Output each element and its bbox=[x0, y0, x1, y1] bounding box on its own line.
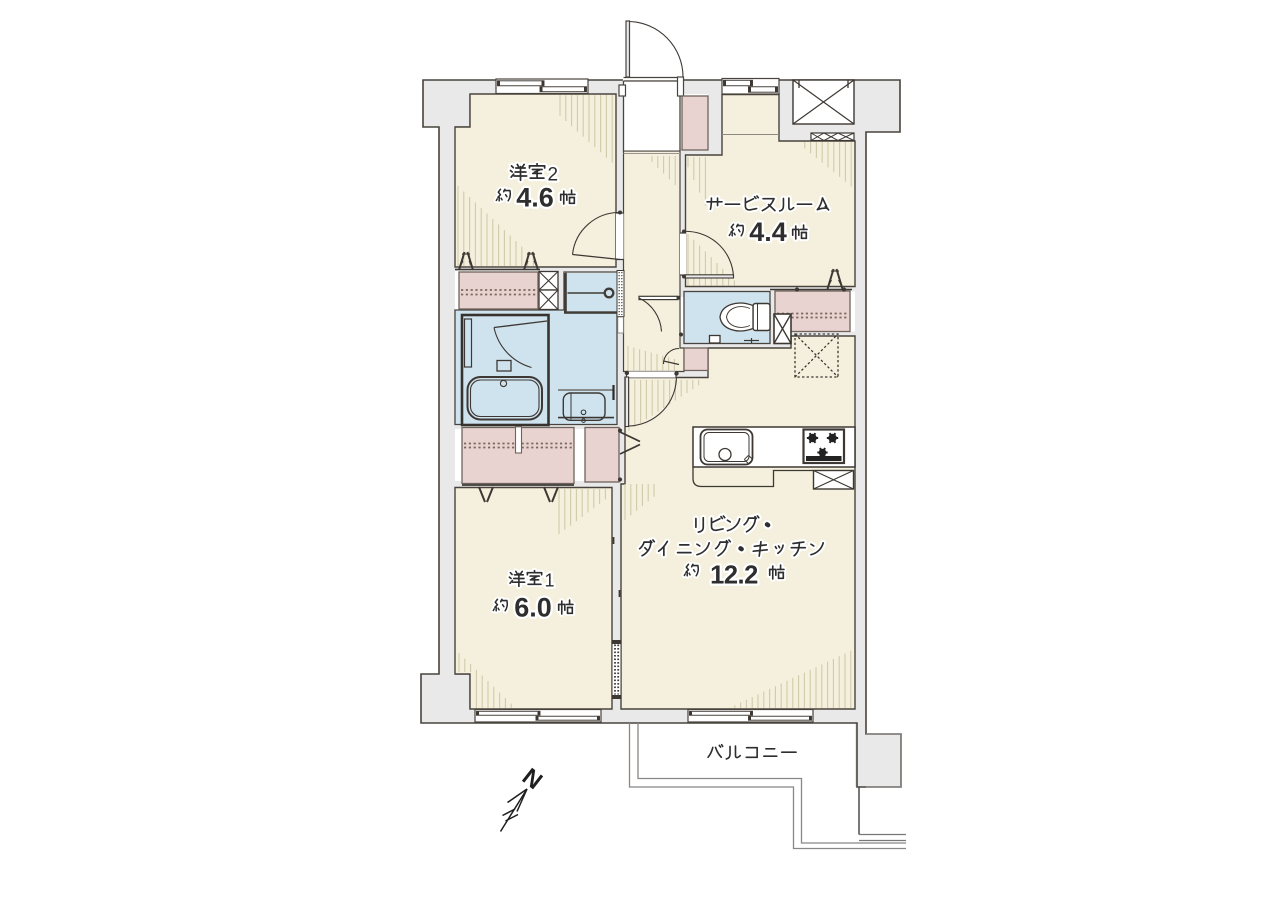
svg-text:4.4: 4.4 bbox=[749, 217, 787, 247]
svg-text:12.2: 12.2 bbox=[710, 562, 758, 590]
svg-text:1: 1 bbox=[545, 571, 555, 591]
svg-text:4.6: 4.6 bbox=[516, 183, 554, 213]
svg-text:6.0: 6.0 bbox=[514, 593, 552, 623]
